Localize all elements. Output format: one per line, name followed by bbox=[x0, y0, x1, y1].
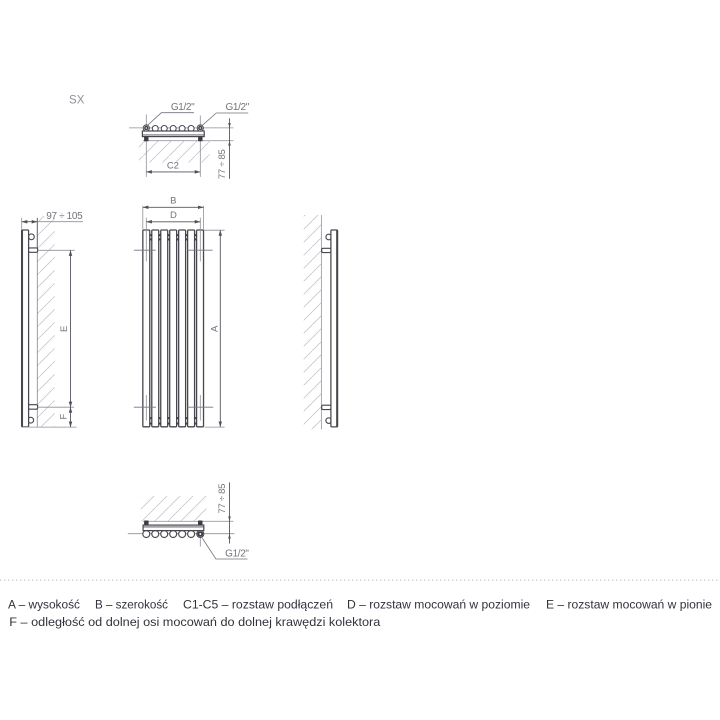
svg-text:F: F bbox=[59, 414, 70, 420]
svg-text:C2: C2 bbox=[167, 161, 179, 172]
svg-text:C1-C5 – rozstaw podłączeń: C1-C5 – rozstaw podłączeń bbox=[183, 597, 333, 611]
svg-text:G1/2": G1/2" bbox=[171, 102, 195, 113]
svg-text:A: A bbox=[209, 325, 220, 332]
svg-text:A – wysokość: A – wysokość bbox=[8, 597, 80, 611]
svg-text:G1/2": G1/2" bbox=[225, 102, 249, 113]
svg-text:E: E bbox=[59, 326, 70, 332]
svg-text:B: B bbox=[170, 196, 176, 207]
svg-text:77 ÷ 85: 77 ÷ 85 bbox=[217, 150, 228, 180]
svg-text:F – odległość od dolnej osi m: F – odległość od dolnej osi mocowań do d… bbox=[9, 615, 380, 629]
svg-text:D – rozstaw mocowań w poziomie: D – rozstaw mocowań w poziomie bbox=[347, 597, 530, 611]
svg-text:E – rozstaw mocowań w pionie: E – rozstaw mocowań w pionie bbox=[546, 597, 712, 611]
svg-text:B – szerokość: B – szerokość bbox=[95, 597, 168, 611]
svg-text:SX: SX bbox=[69, 95, 85, 107]
svg-text:D: D bbox=[170, 210, 177, 221]
svg-text:77 ÷ 85: 77 ÷ 85 bbox=[217, 484, 228, 514]
svg-text:97 ÷ 105: 97 ÷ 105 bbox=[46, 211, 83, 222]
svg-text:G1/2": G1/2" bbox=[225, 548, 249, 559]
